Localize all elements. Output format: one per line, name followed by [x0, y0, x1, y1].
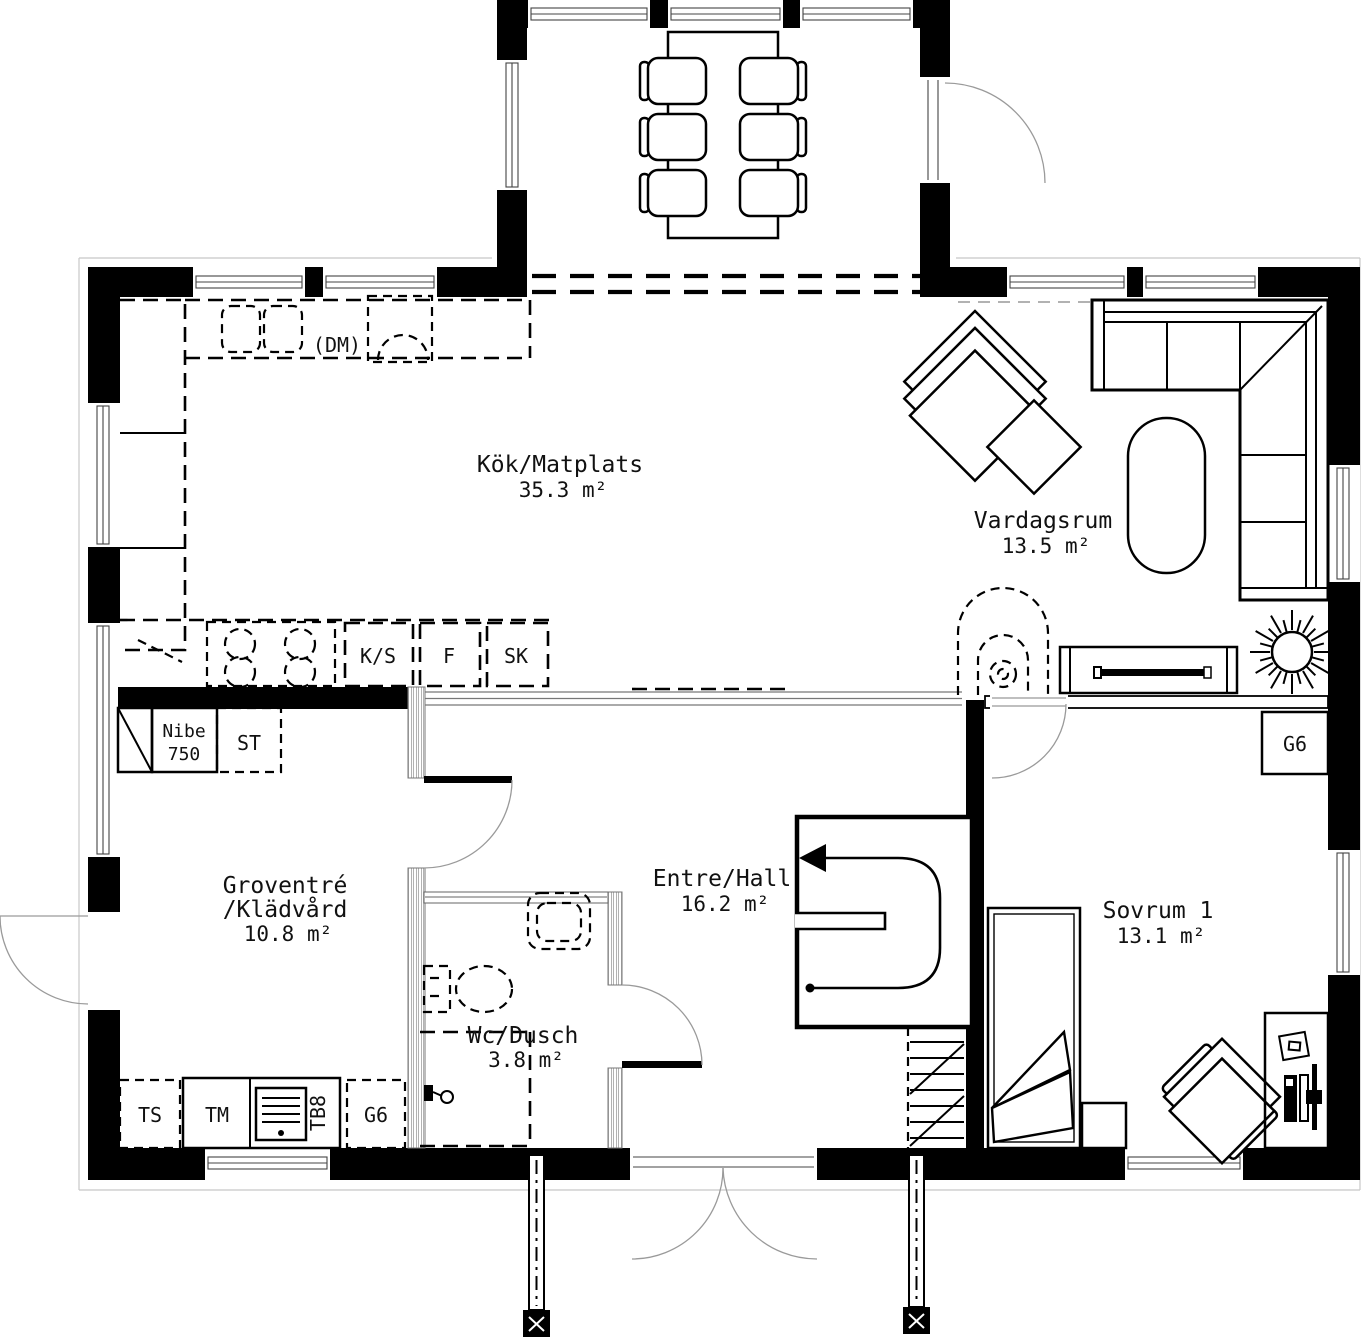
floor-plan-page: Kök/Matplats 35.3 m² Vardagsrum 13.5 m² … — [0, 0, 1363, 1344]
label-nibe-line1: Nibe — [162, 721, 205, 742]
label-freezer: F — [443, 644, 455, 668]
label-nibe-line2: 750 — [168, 744, 201, 765]
window — [1328, 850, 1360, 975]
window — [1143, 267, 1258, 297]
room-area-wc: 3.8 m² — [488, 1048, 564, 1072]
label-utility-wardrobe: G6 — [364, 1103, 388, 1127]
room-area-bedroom: 13.1 m² — [1117, 924, 1206, 948]
room-label-wc: Wc/Dusch — [468, 1023, 579, 1049]
dining-set — [640, 32, 806, 238]
window — [528, 0, 650, 28]
window — [668, 0, 783, 28]
window — [205, 1148, 330, 1180]
room-area-hall: 16.2 m² — [681, 892, 770, 916]
floor-plan-drawing: Kök/Matplats 35.3 m² Vardagsrum 13.5 m² … — [0, 0, 1363, 1344]
label-bedroom-wardrobe: G6 — [1283, 732, 1307, 756]
window — [1328, 465, 1360, 582]
room-label-living: Vardagsrum — [974, 508, 1112, 534]
room-label-hall: Entre/Hall — [653, 866, 791, 892]
window — [88, 623, 120, 857]
room-label-bedroom: Sovrum 1 — [1103, 898, 1214, 924]
room-area-kitchen: 35.3 m² — [519, 478, 608, 502]
label-cleaning-cabinet: ST — [237, 731, 261, 755]
label-dishwasher: (DM) — [313, 333, 361, 357]
window — [323, 267, 437, 297]
utility-north-wall — [118, 687, 410, 709]
room-area-utility: 10.8 m² — [244, 922, 333, 946]
room-area-living: 13.5 m² — [1002, 534, 1091, 558]
label-tumble-dryer: TB8 — [306, 1095, 330, 1131]
window — [497, 60, 527, 190]
stairs — [795, 817, 972, 1027]
window — [1007, 267, 1127, 297]
room-label-utility-line2: /Klädvård — [223, 895, 348, 923]
bed — [988, 908, 1080, 1148]
window — [193, 267, 305, 297]
label-drying-cabinet: TS — [138, 1103, 162, 1127]
label-tall-cabinet: SK — [504, 644, 528, 668]
label-washing-machine: TM — [205, 1103, 229, 1127]
window — [88, 403, 120, 547]
label-fridge-freezer: K/S — [360, 644, 396, 668]
room-label-kitchen: Kök/Matplats — [477, 452, 643, 478]
room-label-utility-line1: Groventré — [223, 873, 348, 899]
window — [800, 0, 913, 28]
